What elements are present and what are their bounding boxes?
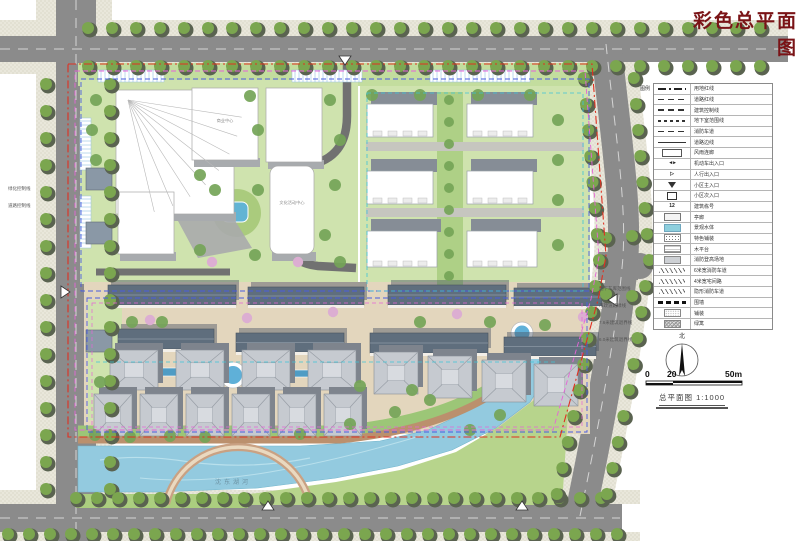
legend-row-label: 绿篱 (691, 320, 772, 327)
legend-row-label: 隐形消防车道 (691, 288, 772, 295)
legend-symbol-wave-icon (654, 266, 691, 276)
legend-row-label: 消防登高场地 (691, 256, 772, 263)
legend-row-label: 道路边线 (691, 139, 772, 146)
plan-annotation: 6.0米建筑退界线 (599, 337, 632, 343)
legend-panel: 图例 用地红线道路红线建筑控制线地下室范围线消防车道道路边线风雨连廊◄▸机动车出… (640, 83, 773, 330)
legend-row: 围墙 (654, 298, 772, 309)
legend-row: 消防登高场地 (654, 255, 772, 266)
legend-symbol-boxdots-icon (654, 234, 691, 244)
legend-row-label: 消防车道 (691, 128, 772, 135)
legend-symbol-boxblue-icon (654, 223, 691, 233)
north-label: 北 (679, 332, 685, 340)
scale-0: 0 (645, 369, 650, 379)
legend-symbol-boxgray-icon (654, 255, 691, 265)
legend-row: 12建筑栋号 (654, 202, 772, 213)
legend-row-label: 用地红线 (691, 85, 772, 92)
legend-symbol-cross-icon (654, 319, 691, 329)
legend-row: ▷人行出入口 (654, 170, 772, 181)
legend-row-label: 铺装 (691, 310, 772, 317)
sheet-caption: 总平面图 1:1000 (656, 392, 728, 409)
legend-symbol-dashbold-icon (654, 298, 691, 308)
legend-row-label: 人行出入口 (691, 171, 772, 178)
legend-row-label: 亭廊 (691, 214, 772, 221)
legend-row: 用地红线 (654, 84, 772, 95)
legend-row-label: 小区次入口 (691, 192, 772, 199)
legend-row: 特色铺装 (654, 234, 772, 245)
legend-symbol-txtA-icon: ◄▸ (654, 159, 691, 169)
plan-annotation: 地下车库范围线 (599, 286, 631, 292)
legend-row-label: 围墙 (691, 299, 772, 306)
legend-symbol-stipple-icon (654, 308, 691, 318)
legend-heading: 图例 (640, 85, 651, 92)
legend-row: 亭廊 (654, 212, 772, 223)
legend-symbol-dash-icon (654, 105, 691, 115)
legend-symbol-num-icon: 12 (654, 202, 691, 212)
legend-row-label: 建筑控制线 (691, 107, 772, 114)
legend-row: 小区次入口 (654, 191, 772, 202)
drawing-title: 彩色总平面图 (690, 6, 798, 60)
legend-row-label: 建筑栋号 (691, 203, 772, 210)
legend-symbol-box-icon (654, 212, 691, 222)
legend-row-label: 地下室范围线 (691, 117, 772, 124)
plan-annotation: 绿化控制线 (8, 186, 31, 192)
river-label: 沈东湖河 (215, 478, 251, 486)
legend-row-label: 木平台 (691, 246, 772, 253)
legend-row-label: 景观水体 (691, 224, 772, 231)
legend-symbol-solid-icon (654, 137, 691, 147)
legend-symbol-txtB-icon: ▷ (654, 170, 691, 180)
site-plan-sheet: 沈东湖河 (0, 0, 800, 541)
scale-20: 20 (667, 369, 677, 379)
legend-row-label: 机动车出入口 (691, 160, 772, 167)
legend-symbol-dash-icon (654, 95, 691, 105)
legend-row: 消防车道 (654, 127, 772, 138)
center-building-label: 文化活动中心 (279, 199, 305, 206)
legend-row: 小区主入口 (654, 180, 772, 191)
legend-symbol-wave-icon (654, 276, 691, 286)
legend-table: 用地红线道路红线建筑控制线地下室范围线消防车道道路边线风雨连廊◄▸机动车出入口▷… (653, 83, 773, 330)
legend-symbol-boxlines-icon (654, 244, 691, 254)
caption-ratio: 1:1000 (696, 393, 725, 402)
legend-row: 道路红线 (654, 95, 772, 106)
legend-row: 木平台 (654, 244, 772, 255)
legend-symbol-tri2-icon (654, 191, 691, 201)
legend-row-label: 风雨连廊 (691, 149, 772, 156)
mall-building-label: 商业中心 (217, 117, 235, 124)
legend-symbol-wave-icon (654, 287, 691, 297)
legend-row-label: 小区主入口 (691, 182, 772, 189)
legend-row: 4米宽宅间路 (654, 276, 772, 287)
legend-row: 道路边线 (654, 137, 772, 148)
legend-symbol-rect-icon (654, 148, 691, 158)
legend-row: 风雨连廊 (654, 148, 772, 159)
legend-symbol-dashshort-icon (654, 116, 691, 126)
legend-row: ◄▸机动车出入口 (654, 159, 772, 170)
scale-bar: 0 20 50m (643, 368, 758, 392)
legend-symbol-dashdot-icon (654, 84, 691, 94)
legend-row: 铺装 (654, 308, 772, 319)
legend-row-label: 6米宽消防车道 (691, 267, 772, 274)
scale-50m: 50m (725, 369, 742, 379)
legend-row: 地下室范围线 (654, 116, 772, 127)
legend-row-label: 特色铺装 (691, 235, 772, 242)
plan-annotation: 7.6米建筑退界线 (599, 320, 632, 326)
legend-row: 绿篱 (654, 319, 772, 329)
caption-text: 总平面图 (659, 393, 693, 402)
legend-row-label: 4米宽宅间路 (691, 278, 772, 285)
legend-row: 景观水体 (654, 223, 772, 234)
legend-symbol-tri-icon (654, 180, 691, 190)
legend-symbol-dash-icon (654, 127, 691, 137)
plan-annotation: 市政道路绿线 (599, 303, 626, 309)
plan-annotation: 道路控制线 (8, 203, 31, 209)
legend-row-label: 道路红线 (691, 96, 772, 103)
legend-row: 建筑控制线 (654, 105, 772, 116)
legend-row: 6米宽消防车道 (654, 266, 772, 277)
legend-row: 隐形消防车道 (654, 287, 772, 298)
